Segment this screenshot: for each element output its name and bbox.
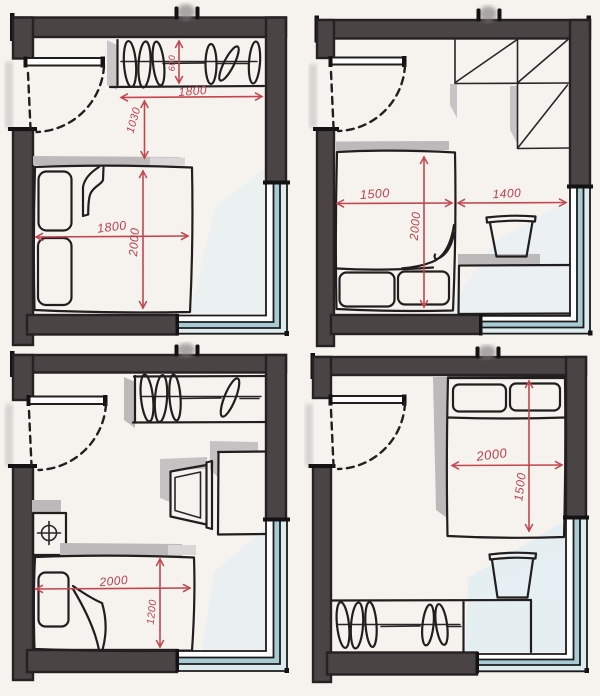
svg-text:2000: 2000: [98, 573, 129, 590]
svg-text:1500: 1500: [360, 186, 391, 202]
svg-text:2000: 2000: [126, 227, 142, 258]
svg-text:1800: 1800: [178, 83, 208, 99]
svg-text:1400: 1400: [492, 186, 521, 201]
svg-text:2000: 2000: [407, 211, 424, 242]
svg-text:600: 600: [167, 55, 177, 72]
